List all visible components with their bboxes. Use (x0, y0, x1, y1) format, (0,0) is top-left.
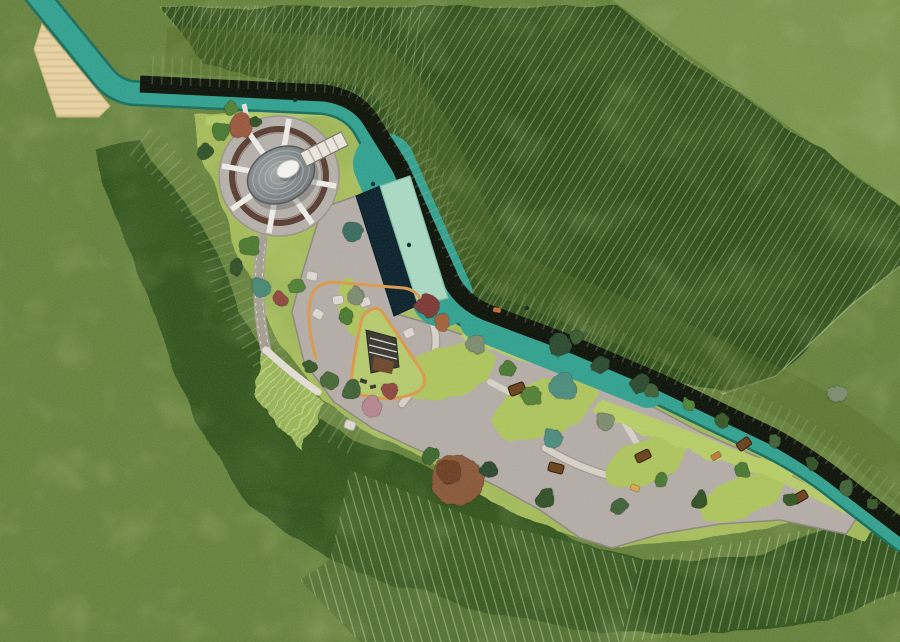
site-plan (0, 0, 900, 642)
site-plan-frame (0, 0, 900, 642)
texture-grain (0, 0, 900, 642)
